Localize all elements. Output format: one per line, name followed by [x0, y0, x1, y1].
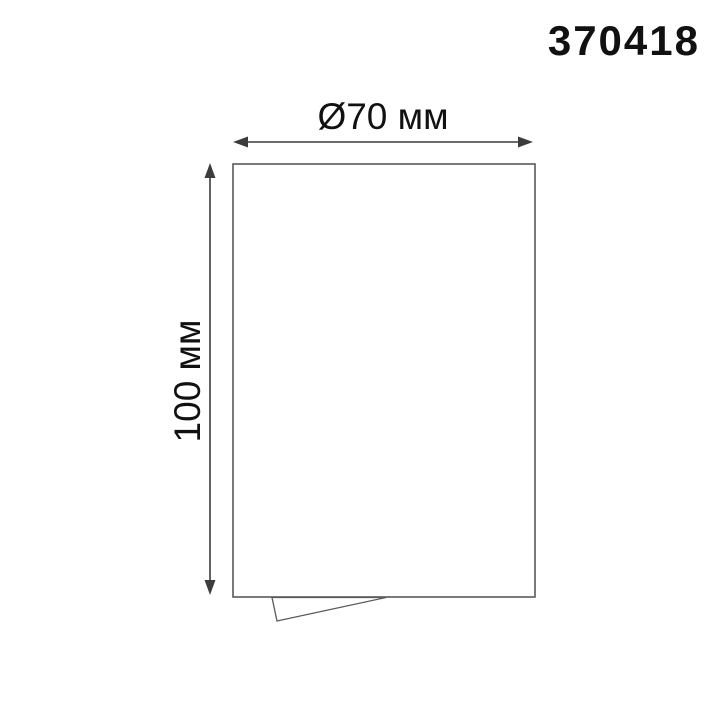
- height-arrow-top-icon: [205, 163, 216, 178]
- height-arrow-bottom-icon: [205, 580, 216, 595]
- diameter-arrow-left-icon: [233, 137, 248, 148]
- diameter-dimension-line: [233, 137, 533, 148]
- height-dimension-line: [205, 163, 216, 595]
- fixture-body-outline: [233, 164, 535, 597]
- fixture-swivel-flap-outline: [272, 598, 386, 622]
- technical-drawing-page: 370418 Ø70 мм 100 мм: [0, 0, 720, 720]
- fixture-dimension-drawing: [0, 0, 720, 720]
- diameter-arrow-right-icon: [518, 137, 533, 148]
